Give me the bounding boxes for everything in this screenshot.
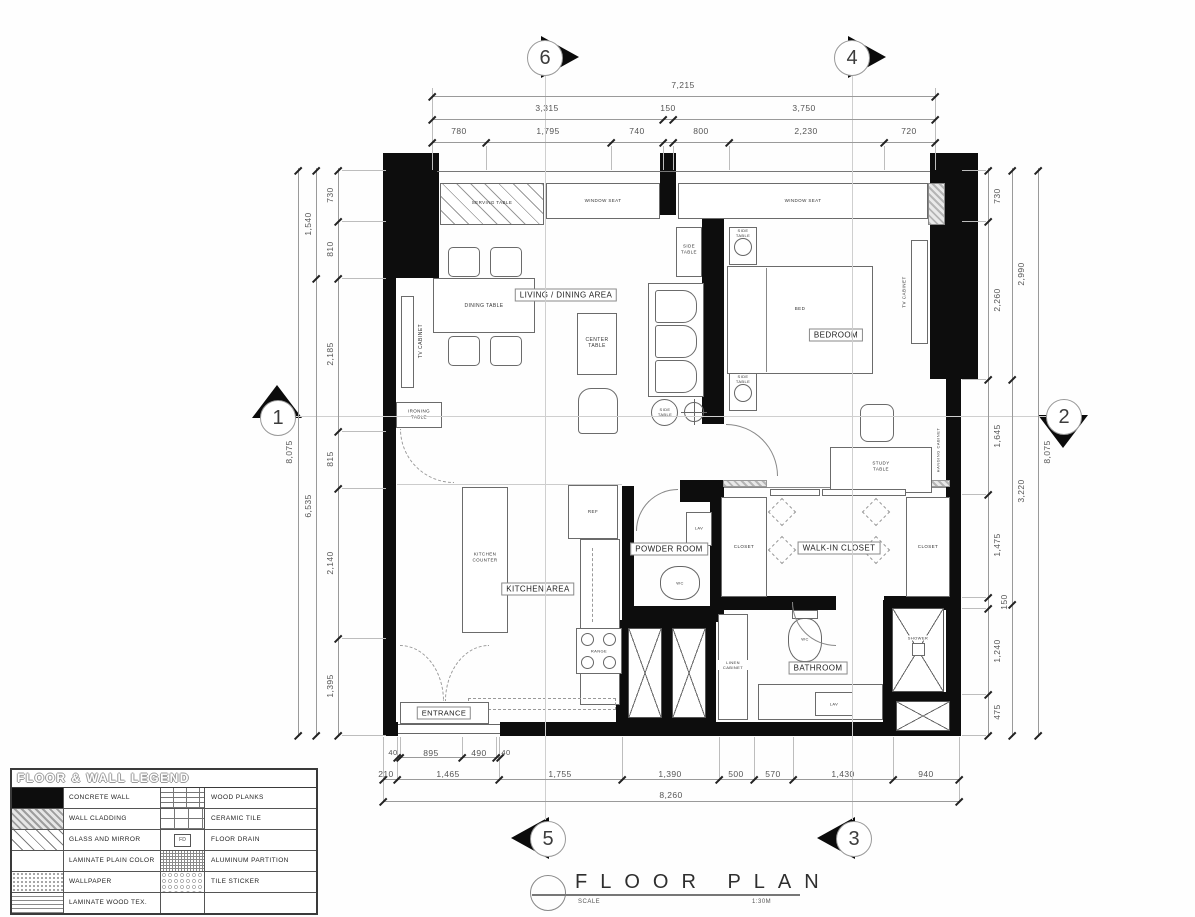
sofa-cushion bbox=[655, 325, 697, 358]
dim-label: 3,220 bbox=[1016, 479, 1026, 502]
legend-label: WALLPAPER bbox=[64, 872, 161, 892]
dim-label: 1,755 bbox=[548, 769, 571, 779]
entrance-door-arc bbox=[445, 645, 489, 701]
closet-label: CLOSET bbox=[733, 544, 755, 550]
dim-label: 2,185 bbox=[325, 342, 335, 365]
closet-rod bbox=[822, 489, 906, 496]
legend-row: CONCRETE WALL WOOD PLANKS bbox=[12, 788, 316, 809]
extension-line bbox=[959, 737, 960, 781]
grid-bubble-label: 4 bbox=[846, 47, 857, 70]
grid-bubble-label: 1 bbox=[272, 407, 283, 430]
tick bbox=[984, 732, 992, 740]
tick bbox=[955, 798, 963, 806]
dim-line bbox=[1012, 168, 1013, 737]
dim-label: 1,240 bbox=[992, 639, 1002, 662]
tick bbox=[294, 732, 302, 740]
extension-line bbox=[884, 146, 885, 170]
wall-cladding bbox=[928, 183, 945, 225]
dim-label: 720 bbox=[901, 126, 916, 136]
hanging-clothes-symbol bbox=[768, 498, 796, 526]
extension-line bbox=[342, 431, 386, 432]
dim-label: 730 bbox=[325, 187, 335, 202]
dim-label: 1,475 bbox=[992, 533, 1002, 556]
room-label-bedroom: BEDROOM bbox=[809, 329, 863, 342]
legend-label: CONCRETE WALL bbox=[64, 788, 161, 808]
dim-label: 6,535 bbox=[303, 494, 313, 517]
dining-chair bbox=[490, 336, 522, 366]
dim-line bbox=[397, 757, 500, 758]
extension-line bbox=[663, 146, 664, 170]
extension-line bbox=[432, 146, 433, 170]
legend-label: WOOD PLANKS bbox=[205, 788, 316, 808]
extension-line bbox=[611, 146, 612, 170]
swatch-aluminum-partition bbox=[161, 851, 205, 871]
ledge bbox=[896, 701, 950, 731]
grid-bubble-2: 2 bbox=[1046, 399, 1082, 435]
closet-rod bbox=[770, 489, 820, 496]
extension-line bbox=[342, 488, 386, 489]
tv-cabinet-label: TV CABINET bbox=[902, 276, 907, 308]
extension-line bbox=[962, 608, 986, 609]
extension-line bbox=[754, 737, 755, 781]
lavatory-label: LAV bbox=[829, 702, 839, 707]
armchair bbox=[578, 388, 618, 434]
refrigerator-label: REF bbox=[587, 509, 599, 515]
dim-label: 8,260 bbox=[659, 790, 682, 800]
dim-label: 1,645 bbox=[992, 424, 1002, 447]
entrance-door-arc bbox=[400, 645, 444, 701]
counter-dashed-line bbox=[592, 548, 594, 622]
dim-label: 2,260 bbox=[992, 288, 1002, 311]
grid-bubble-1: 1 bbox=[260, 400, 296, 436]
burner bbox=[603, 656, 616, 669]
dim-label: 730 bbox=[992, 188, 1002, 203]
wall bbox=[702, 208, 724, 424]
dim-label: 810 bbox=[325, 241, 335, 256]
wall-cladding bbox=[723, 480, 767, 487]
dim-label: 1,395 bbox=[325, 674, 335, 697]
extension-line bbox=[719, 737, 720, 781]
dim-line bbox=[432, 142, 935, 143]
legend-panel: FLOOR & WALL LEGEND CONCRETE WALL WOOD P… bbox=[10, 768, 318, 915]
overhead-cabinet-dashed bbox=[468, 698, 616, 710]
desk-chair bbox=[860, 404, 894, 442]
serving-table-label: SERVING TABLE bbox=[461, 200, 523, 206]
titleblock-rule bbox=[532, 894, 800, 896]
dim-label: 150 bbox=[660, 103, 675, 113]
grid-bubble-5: 5 bbox=[530, 821, 566, 857]
tv-cabinet-label: TV CABINET bbox=[418, 324, 424, 358]
bed-label: BED bbox=[794, 306, 806, 312]
table-lamp bbox=[734, 384, 752, 402]
dim-line bbox=[383, 801, 959, 802]
center-table-label: CENTER TABLE bbox=[581, 337, 613, 350]
swatch-laminate-plain bbox=[12, 851, 64, 871]
legend-row: GLASS AND MIRROR FD FLOOR DRAIN bbox=[12, 830, 316, 851]
dim-label: 570 bbox=[765, 769, 780, 779]
dim-line bbox=[432, 96, 935, 97]
burner bbox=[581, 633, 594, 646]
tick bbox=[1008, 732, 1016, 740]
dim-label: 740 bbox=[629, 126, 644, 136]
extension-line bbox=[622, 737, 623, 781]
dim-label: 800 bbox=[693, 126, 708, 136]
bed-pillow-line bbox=[766, 268, 767, 372]
legend-row: LAMINATE WOOD TEX. bbox=[12, 893, 316, 913]
grid-bubble-6: 6 bbox=[527, 40, 563, 76]
extension-line bbox=[342, 638, 386, 639]
window-seat-label: WINDOW SEAT bbox=[767, 198, 839, 204]
floor-drain-icon: FD bbox=[174, 834, 191, 847]
sofa-cushion bbox=[655, 290, 697, 323]
door-swing-arc bbox=[636, 489, 678, 531]
dim-label: 2,230 bbox=[794, 126, 817, 136]
legend-label: LAMINATE PLAIN COLOR bbox=[64, 851, 161, 871]
extension-line bbox=[342, 278, 386, 279]
extension-line bbox=[383, 737, 384, 781]
dim-line bbox=[1038, 168, 1039, 737]
grid-bubble-label: 6 bbox=[539, 47, 550, 70]
legend-label: FLOOR DRAIN bbox=[205, 830, 316, 850]
extension-line bbox=[935, 146, 936, 170]
ironing-table-label: IRONING TABLE bbox=[400, 408, 438, 419]
extension-line bbox=[962, 694, 986, 695]
wall bbox=[383, 153, 439, 278]
swatch-laminate-wood bbox=[12, 893, 64, 913]
dim-line bbox=[338, 168, 339, 737]
linen-cabinet-label: LINEN CABINET bbox=[718, 660, 748, 670]
window-seat-label: WINDOW SEAT bbox=[567, 198, 639, 204]
hanging-cabinet-label: HANGING CABINET bbox=[936, 428, 941, 473]
kitchen-counter bbox=[580, 539, 620, 705]
dim-label: 8,075 bbox=[1042, 440, 1052, 463]
side-table-label: SIDE TABLE bbox=[731, 228, 755, 238]
legend-label: WALL CLADDING bbox=[64, 809, 161, 829]
extension-line bbox=[962, 170, 986, 171]
legend-label: CERAMIC TILE bbox=[205, 809, 316, 829]
grid-bubble-label: 3 bbox=[848, 828, 859, 851]
exterior-wall-line bbox=[437, 171, 930, 172]
extension-line bbox=[342, 221, 386, 222]
dim-line bbox=[432, 119, 935, 120]
line bbox=[398, 733, 500, 734]
swatch-wall-cladding bbox=[12, 809, 64, 829]
table-lamp bbox=[734, 238, 752, 256]
legend-label: TILE STICKER bbox=[205, 872, 316, 892]
toilet-label: WC bbox=[800, 637, 809, 642]
burner bbox=[603, 633, 616, 646]
burner bbox=[581, 656, 594, 669]
dim-label: 2,990 bbox=[1016, 262, 1026, 285]
legend-label: GLASS AND MIRROR bbox=[64, 830, 161, 850]
extension-line bbox=[793, 737, 794, 781]
extension-line bbox=[962, 494, 986, 495]
dim-label: 2,140 bbox=[325, 551, 335, 574]
dim-label: 780 bbox=[451, 126, 466, 136]
dim-label: 475 bbox=[992, 704, 1002, 719]
room-label-bathroom: BATHROOM bbox=[789, 662, 848, 675]
closet-label: CLOSET bbox=[917, 544, 939, 550]
room-label-kitchen: KITCHEN AREA bbox=[501, 583, 574, 596]
dim-label: 940 bbox=[918, 769, 933, 779]
titleblock-circle-icon bbox=[530, 875, 566, 911]
swatch-tile-sticker bbox=[161, 872, 205, 892]
hanging-clothes-symbol bbox=[862, 498, 890, 526]
room-label-entrance: ENTRANCE bbox=[417, 707, 471, 720]
shaft bbox=[672, 628, 706, 718]
dining-chair bbox=[448, 247, 480, 277]
dim-label: 1,390 bbox=[658, 769, 681, 779]
shaft bbox=[628, 628, 662, 718]
tv-cabinet bbox=[401, 296, 414, 388]
extension-line bbox=[962, 597, 986, 598]
line bbox=[398, 724, 500, 725]
fixture-crosshair bbox=[694, 399, 695, 425]
legend-row: WALL CLADDING CERAMIC TILE bbox=[12, 809, 316, 830]
swatch-floor-drain: FD bbox=[161, 830, 205, 850]
swatch-concrete-wall bbox=[12, 788, 64, 808]
hanging-clothes-symbol bbox=[768, 536, 796, 564]
grid-line bbox=[852, 76, 853, 820]
lavatory-label: LAV bbox=[694, 526, 704, 531]
scale-label: SCALE bbox=[578, 899, 600, 905]
sofa-cushion bbox=[655, 360, 697, 393]
tick bbox=[312, 732, 320, 740]
extension-line bbox=[486, 146, 487, 170]
range-label: RANGE bbox=[590, 649, 608, 654]
dim-label: 1,795 bbox=[536, 126, 559, 136]
grid-bubble-3: 3 bbox=[836, 821, 872, 857]
dim-line bbox=[298, 168, 299, 737]
room-label-powder: POWDER ROOM bbox=[630, 543, 708, 556]
extension-line bbox=[893, 737, 894, 781]
swatch-glass-mirror bbox=[12, 830, 64, 850]
side-table-label: SIDE TABLE bbox=[731, 374, 755, 384]
extension-line bbox=[962, 735, 986, 736]
grid-line bbox=[545, 76, 546, 820]
dim-label: 8,075 bbox=[284, 440, 294, 463]
dim-label: 1,540 bbox=[303, 212, 313, 235]
swatch-wallpaper bbox=[12, 872, 64, 892]
extension-line bbox=[962, 221, 986, 222]
room-label-living: LIVING / DINING AREA bbox=[515, 289, 617, 302]
extension-line bbox=[729, 146, 730, 170]
dim-line bbox=[383, 779, 959, 780]
extension-line bbox=[342, 735, 386, 736]
shower-drain bbox=[912, 643, 925, 656]
dining-table-label: DINING TABLE bbox=[460, 303, 508, 309]
toilet-label: WC bbox=[675, 581, 684, 586]
grid-line bbox=[296, 416, 1046, 417]
door-swing-arc bbox=[726, 424, 778, 476]
dim-label: 500 bbox=[728, 769, 743, 779]
extension-line bbox=[342, 170, 386, 171]
room-label-walkin: WALK-IN CLOSET bbox=[798, 542, 881, 555]
dim-line bbox=[988, 168, 989, 737]
swatch-ceramic-tile bbox=[161, 809, 205, 829]
door-swing-arc bbox=[400, 429, 454, 483]
study-table-label: STUDY TABLE bbox=[863, 460, 899, 471]
wall bbox=[383, 278, 396, 736]
tick bbox=[1034, 732, 1042, 740]
extension-line bbox=[673, 146, 674, 170]
floor-plan-canvas: 6 4 1 2 5 3 TV CABINET DINING TABLE CENT… bbox=[0, 0, 1195, 917]
shower-label: SHOWER bbox=[907, 636, 929, 641]
legend-row: LAMINATE PLAIN COLOR ALUMINUM PARTITION bbox=[12, 851, 316, 872]
legend-label: LAMINATE WOOD TEX. bbox=[64, 893, 161, 913]
dim-label: 1,465 bbox=[436, 769, 459, 779]
dim-label: 7,215 bbox=[671, 80, 694, 90]
dim-line bbox=[316, 168, 317, 737]
dim-label: 3,315 bbox=[535, 103, 558, 113]
extension-line bbox=[962, 379, 986, 380]
dim-label: 3,750 bbox=[792, 103, 815, 113]
legend-row: WALLPAPER TILE STICKER bbox=[12, 872, 316, 893]
grid-bubble-label: 5 bbox=[542, 828, 553, 851]
dining-chair bbox=[448, 336, 480, 366]
tick bbox=[334, 732, 342, 740]
drawing-title: FLOOR PLAN bbox=[575, 871, 832, 894]
grid-bubble-4: 4 bbox=[834, 40, 870, 76]
tv-cabinet bbox=[911, 240, 928, 344]
legend-label-empty bbox=[205, 893, 316, 913]
grid-bubble-label: 2 bbox=[1058, 406, 1069, 429]
legend-label: ALUMINUM PARTITION bbox=[205, 851, 316, 871]
kitchen-counter-label: KITCHEN COUNTER bbox=[466, 551, 504, 562]
swatch-wood-planks bbox=[161, 788, 205, 808]
dining-chair bbox=[490, 247, 522, 277]
dim-label: 815 bbox=[325, 451, 335, 466]
swatch-empty bbox=[161, 893, 205, 913]
side-table-label: SIDE TABLE bbox=[677, 243, 701, 254]
scale-value: 1:30M bbox=[752, 899, 771, 905]
legend-title: FLOOR & WALL LEGEND bbox=[12, 770, 316, 788]
